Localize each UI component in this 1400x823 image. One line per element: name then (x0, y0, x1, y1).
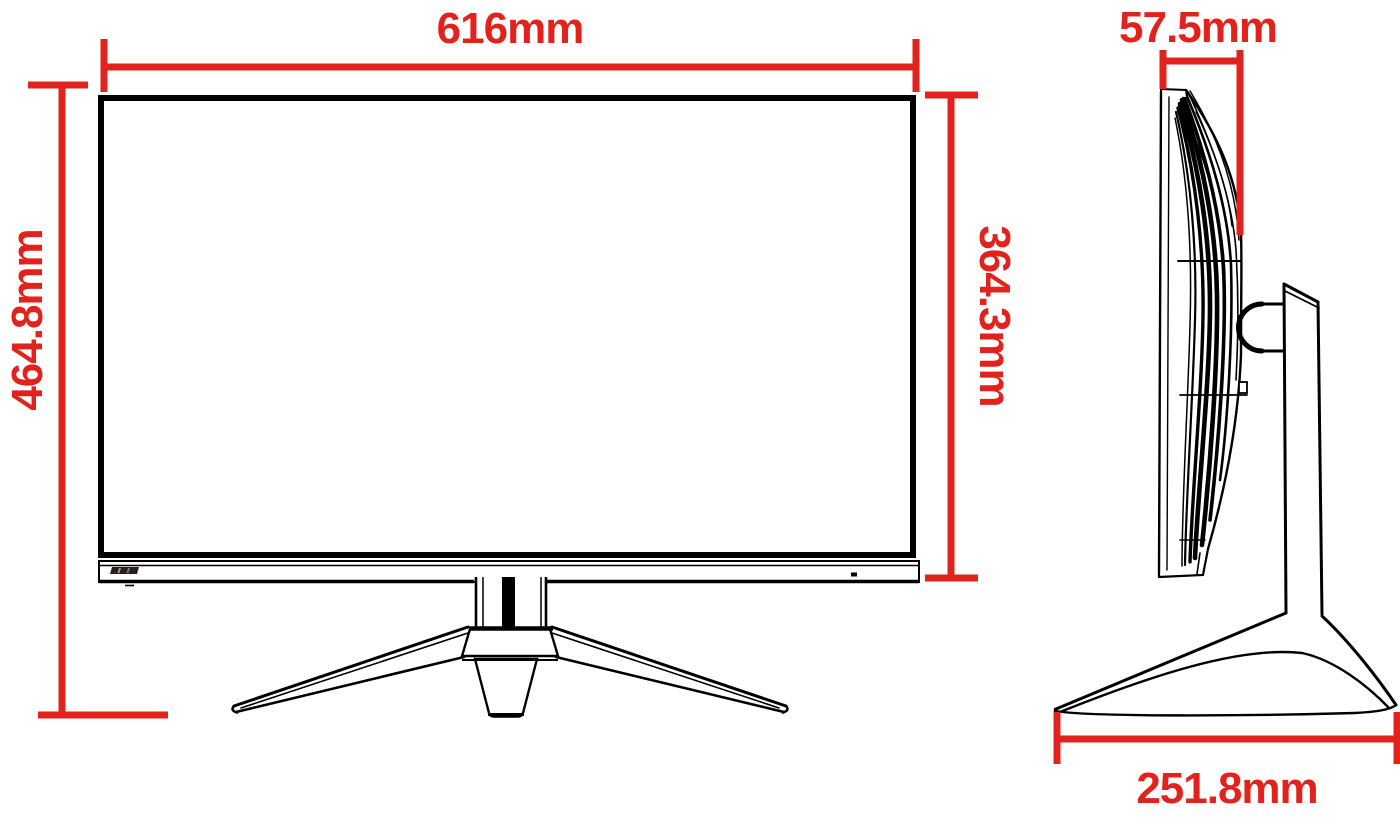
dimension-label-front-screen-height: 364.3mm (972, 225, 1016, 406)
brand-logo-mark (110, 567, 139, 574)
power-led-dot (851, 573, 857, 577)
side-view (1055, 89, 1396, 715)
dimension-label-side-depth: 57.5mm (1119, 6, 1277, 50)
dimension-label-front-width: 616mm (437, 7, 584, 51)
front-stand-collar (462, 629, 558, 656)
diagram-lineart (0, 0, 1400, 823)
monitor-dimension-diagram: 616mm 464.8mm 364.3mm 57.5mm 251.8mm (0, 0, 1400, 823)
side-stand-base (1055, 613, 1396, 715)
front-stand-foot (475, 659, 537, 717)
dimension-label-side-base-depth: 251.8mm (1136, 767, 1317, 811)
dim-side-base-depth-line (1057, 712, 1397, 764)
front-stand-neck (469, 577, 553, 629)
side-back-hatching (1175, 91, 1239, 566)
side-hinge (1239, 304, 1285, 351)
front-view (99, 98, 919, 717)
dimension-label-front-total-height: 464.8mm (6, 229, 50, 410)
front-screen-outline (101, 98, 913, 555)
side-stand-column (1284, 284, 1322, 614)
